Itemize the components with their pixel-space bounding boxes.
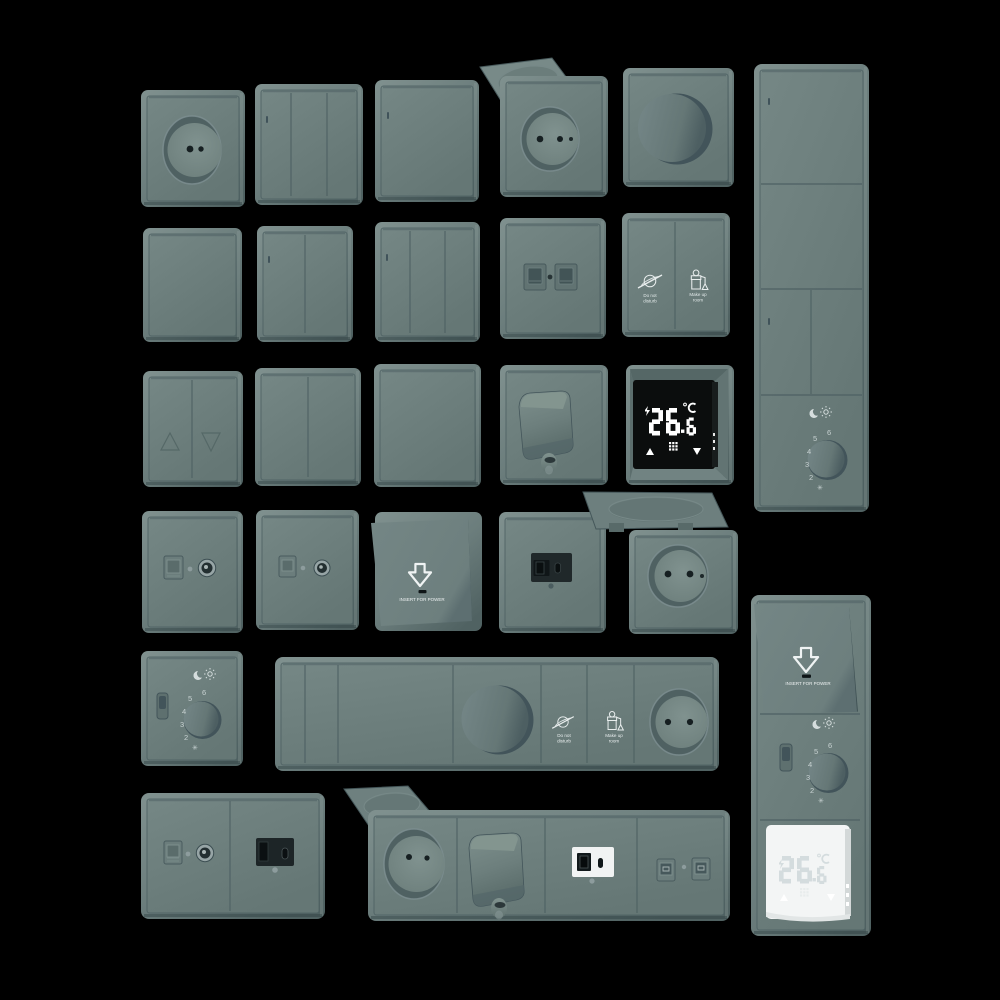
svg-text:2: 2 — [809, 473, 813, 482]
svg-text:Make up: Make up — [689, 292, 707, 297]
svg-text:3: 3 — [180, 720, 184, 729]
svg-text:5: 5 — [188, 694, 192, 703]
svg-text:Do not: Do not — [557, 733, 571, 738]
svg-text:4: 4 — [807, 447, 811, 456]
svg-text:6: 6 — [827, 428, 831, 437]
svg-text:✳: ✳ — [192, 744, 198, 752]
svg-text:✳: ✳ — [818, 797, 824, 805]
svg-text:3: 3 — [805, 460, 809, 469]
svg-text:5: 5 — [814, 747, 818, 756]
svg-text:2: 2 — [810, 786, 814, 795]
svg-text:6: 6 — [828, 741, 832, 750]
svg-text:room: room — [609, 739, 620, 744]
svg-text:disturb: disturb — [643, 299, 657, 304]
svg-text:6: 6 — [202, 688, 206, 697]
svg-text:INSERT FOR POWER: INSERT FOR POWER — [785, 681, 831, 686]
svg-text:3: 3 — [806, 773, 810, 782]
svg-text:✳: ✳ — [817, 484, 823, 492]
svg-text:disturb: disturb — [557, 739, 571, 744]
svg-text:INSERT FOR POWER: INSERT FOR POWER — [399, 597, 445, 602]
svg-text:2: 2 — [184, 733, 188, 742]
svg-text:Make up: Make up — [605, 733, 623, 738]
svg-text:Do not: Do not — [643, 293, 657, 298]
svg-text:4: 4 — [182, 707, 186, 716]
svg-text:4: 4 — [808, 760, 812, 769]
svg-text:room: room — [693, 298, 704, 303]
svg-text:5: 5 — [813, 434, 817, 443]
